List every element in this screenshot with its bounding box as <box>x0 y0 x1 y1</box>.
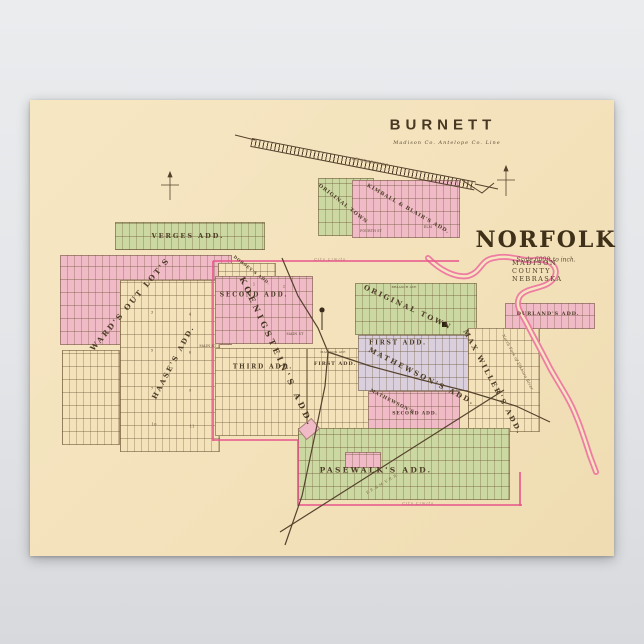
map-label: SECOND ADD. <box>392 412 437 417</box>
map-label: 1 <box>253 282 256 287</box>
map-label: 7 <box>151 386 154 391</box>
map-label: 2 <box>283 284 286 289</box>
map-label: MAX WILLER'S ADD. <box>461 328 524 437</box>
map-label: 10 <box>151 422 156 427</box>
map-label: City Limits <box>402 501 434 506</box>
map-label: WARD'S OUT LOT'S <box>88 255 172 352</box>
map-label: DURLAND'S ADD. <box>517 311 580 317</box>
label-layer: ORIGINAL TOWNKIMBALL & BLAIR'S ADD.FOURT… <box>30 100 614 556</box>
map-label: 4 <box>189 312 192 317</box>
map-label: ORIGINAL TOWN <box>362 283 453 332</box>
page: { "poster": { "titles": { "burnett_title… <box>0 0 644 644</box>
map-label: KIMBALL & BLAIR'S ADD. <box>366 183 451 235</box>
map-label: ORIGINAL TOWN <box>317 183 369 225</box>
burnett-subtitle: Madison Co. Antelope Co. Line <box>393 140 500 146</box>
map-label: MADISON AVE <box>320 350 345 354</box>
map-label: City Limits <box>314 257 346 262</box>
burnett-title: BURNETT <box>390 117 497 134</box>
map-label: DEPOT GROUNDS <box>352 157 389 168</box>
map-label: ELM <box>424 225 432 229</box>
map-label: 6 <box>189 350 192 355</box>
map-label: 9 <box>189 388 192 393</box>
map-label: 11 <box>189 424 194 429</box>
map-label: FIRST ADD. <box>314 361 356 367</box>
map-label: 5 <box>151 348 154 353</box>
map-label: VERGES ADD. <box>152 232 225 240</box>
map-label: North Fork of Elkhorn River <box>501 333 535 391</box>
norfolk-county-note: MADISON COUNTY NEBRASKA <box>512 259 580 283</box>
map-label: MAIN ST <box>286 332 303 336</box>
map-label: F. E. & M. V. R. R. <box>366 473 399 495</box>
map-label: MAIN ST <box>199 344 216 348</box>
map-label: FIRST ADD. <box>369 340 427 347</box>
map-label: BRAASCH AVE <box>391 285 416 289</box>
map-label: FOURTH ST <box>360 229 382 233</box>
vintage-map-poster: ORIGINAL TOWNKIMBALL & BLAIR'S ADD.FOURT… <box>30 100 614 556</box>
map-label: 3 <box>151 310 154 315</box>
map-label: THIRD ADD. <box>233 364 293 371</box>
map-label: PASEWALK'S ADD. <box>320 466 433 475</box>
norfolk-title: NORFOLK <box>476 227 617 253</box>
